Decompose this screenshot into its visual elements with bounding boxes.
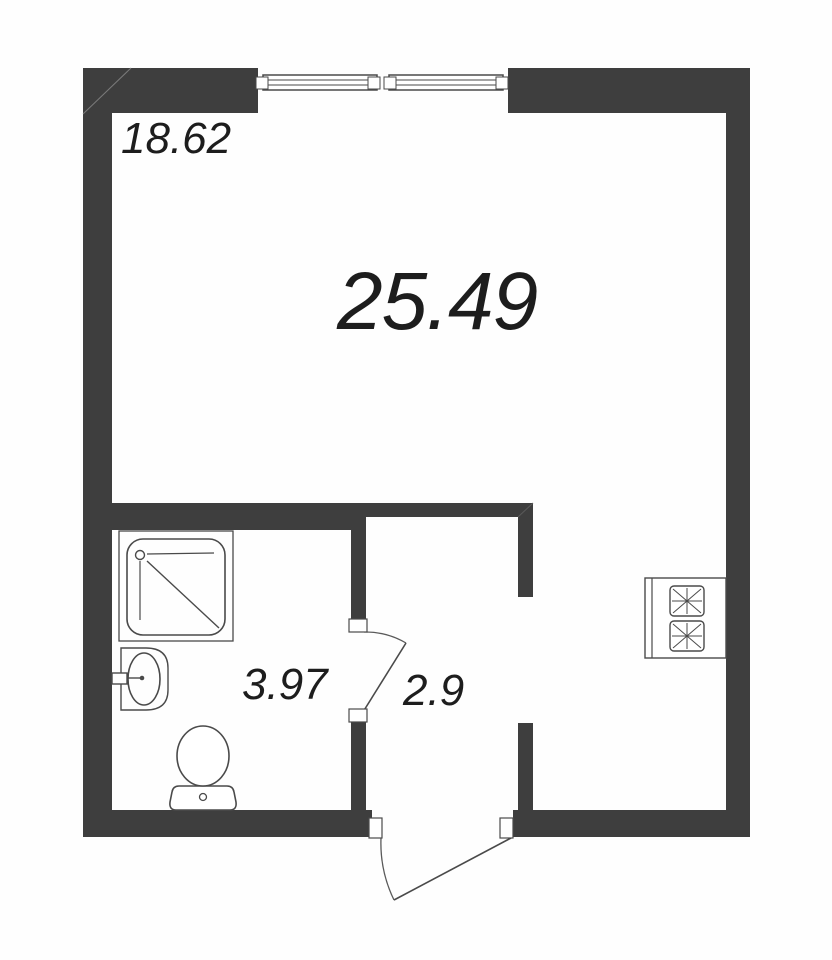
wall-hallway-top xyxy=(366,503,533,517)
walls xyxy=(83,68,750,837)
wall-bathroom-top xyxy=(83,503,366,530)
toilet-bowl xyxy=(177,726,229,786)
door-jamb xyxy=(500,818,513,838)
wall-bottom-right xyxy=(513,810,750,837)
door-jamb xyxy=(349,619,367,632)
wall-bathroom-right-upper xyxy=(351,530,366,620)
window-handle xyxy=(384,77,396,89)
door-swing-arc xyxy=(364,632,406,643)
label-bathroom-area: 3.97 xyxy=(242,663,328,707)
window-handle xyxy=(368,77,380,89)
wall-hallway-right-lower xyxy=(518,723,533,813)
label-total-area: 25.49 xyxy=(337,261,537,343)
toilet-button xyxy=(200,794,207,801)
window-sash-right xyxy=(389,75,503,90)
window-icon xyxy=(256,75,508,90)
floor-plan: 18.62 25.49 3.97 2.9 xyxy=(0,0,832,960)
door-leaf xyxy=(363,643,406,712)
shower-drain xyxy=(136,551,145,560)
stove-icon xyxy=(645,578,726,658)
wall-hallway-right-upper xyxy=(518,517,533,597)
label-hallway-area: 2.9 xyxy=(403,669,464,713)
door-jamb xyxy=(349,709,367,722)
stove-burner xyxy=(670,586,704,616)
door-swing-arc xyxy=(381,838,394,900)
door-jamb xyxy=(369,818,382,838)
label-living-room-area: 18.62 xyxy=(121,117,231,161)
wall-bottom-left xyxy=(83,810,372,837)
window-handle xyxy=(256,77,268,89)
wall-bathroom-right-lower xyxy=(351,722,366,812)
door-leaf xyxy=(394,838,511,900)
wall-right xyxy=(726,68,750,837)
stove-burner xyxy=(670,621,704,651)
wall-left xyxy=(83,68,112,837)
bathroom-door-icon xyxy=(349,619,406,722)
toilet-icon xyxy=(170,726,236,810)
window-handle xyxy=(496,77,508,89)
window-sash-left xyxy=(263,75,377,90)
washbasin-icon xyxy=(112,648,168,710)
shower-tray-icon xyxy=(119,531,233,641)
wall-top-right xyxy=(508,68,750,113)
entrance-door-icon xyxy=(369,818,513,900)
faucet-icon xyxy=(112,673,127,684)
